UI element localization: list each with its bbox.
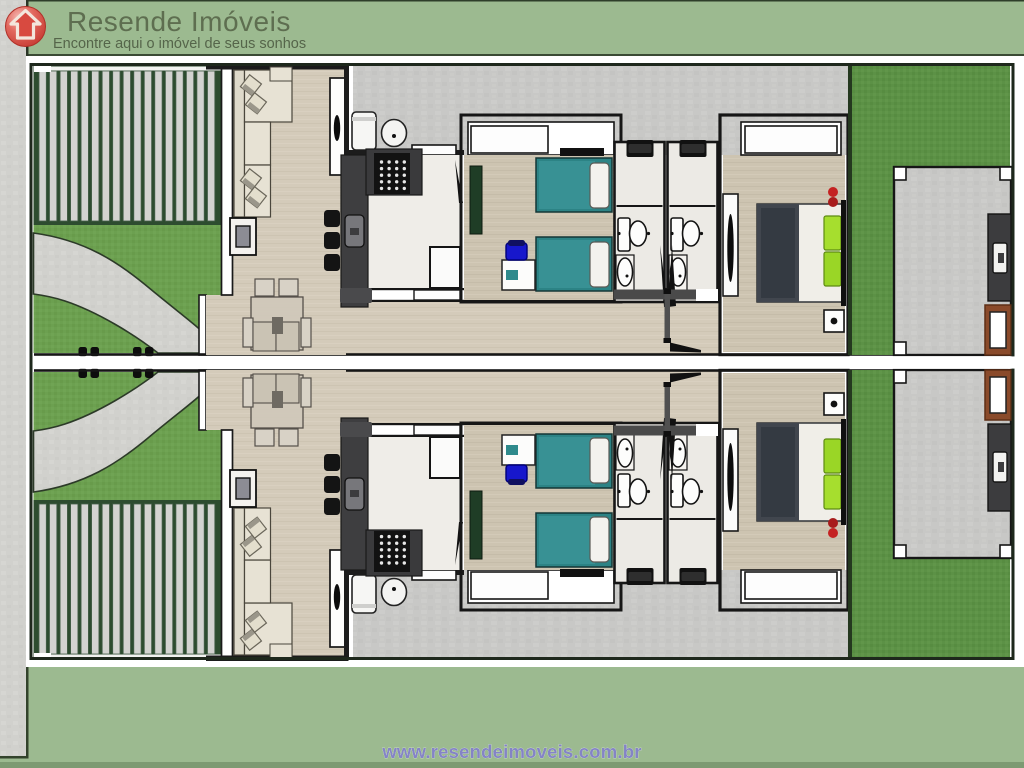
svg-text:Resende Imóveis: Resende Imóveis — [67, 6, 291, 37]
svg-text:Encontre aqui o imóvel de seus: Encontre aqui o imóvel de seus sonhos — [53, 36, 306, 52]
svg-text:www.resendeimoveis.com.br: www.resendeimoveis.com.br — [381, 741, 641, 762]
